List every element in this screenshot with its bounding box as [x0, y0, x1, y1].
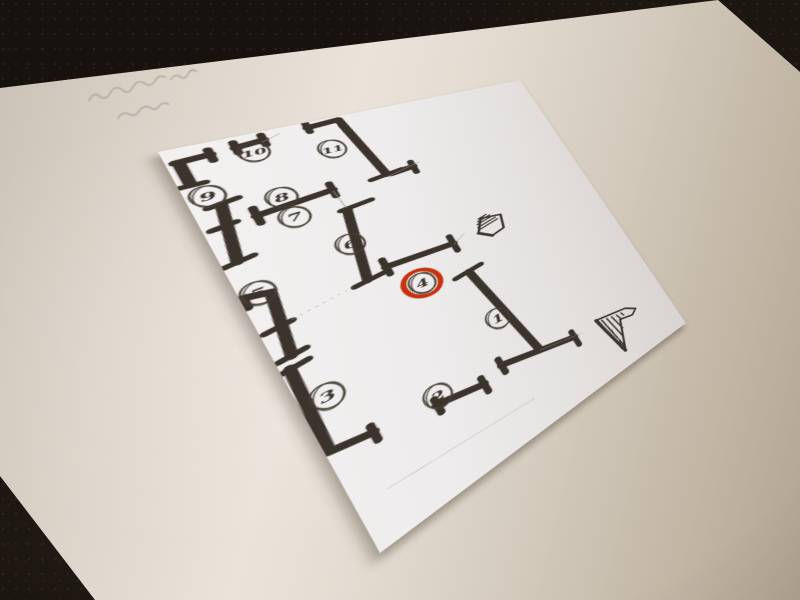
- wall-segment: [330, 427, 374, 457]
- entrance-arrow-large: [596, 299, 652, 355]
- photo-scene: 1234567891011: [0, 0, 800, 600]
- entrance-arrow-small: [470, 210, 509, 240]
- marker-number: 11: [320, 143, 346, 156]
- marker-number: 3: [316, 386, 339, 407]
- hatch-line: [620, 312, 624, 316]
- wall-end-bar: [305, 123, 310, 132]
- wall-end-bar: [571, 332, 579, 345]
- marker-number: 9: [196, 189, 220, 205]
- marker-4: 4: [395, 262, 448, 304]
- wall-segment: [207, 204, 251, 262]
- marker-8: 8: [259, 183, 306, 213]
- pencil-line: [333, 190, 346, 208]
- marker-number: 4: [413, 276, 432, 292]
- wall-segment: [178, 163, 190, 185]
- marker-number: 7: [284, 210, 305, 226]
- wall-end-bar: [253, 208, 262, 223]
- wall-end-bar: [481, 378, 489, 392]
- wall-end-bar: [370, 426, 378, 440]
- wall-segment: [386, 241, 453, 270]
- marker-11: 11: [312, 137, 353, 162]
- wall-segment: [469, 264, 540, 360]
- pencil-line: [288, 287, 356, 320]
- wall-end-bar: [449, 236, 458, 250]
- hatch-thick-edge: [479, 229, 493, 239]
- wall-end-bar: [207, 150, 213, 161]
